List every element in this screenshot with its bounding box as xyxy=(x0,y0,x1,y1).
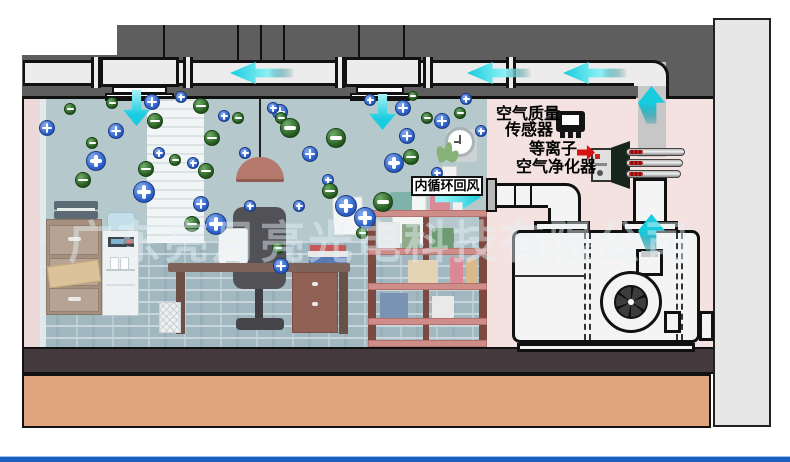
shelf-item xyxy=(378,222,400,248)
label-return-air-text: 内循环回风 xyxy=(414,179,479,194)
bookshelf-board xyxy=(368,210,487,217)
purifier-slot xyxy=(595,163,607,166)
label-plasma-line1: 等离子 xyxy=(529,141,577,157)
shelf-item xyxy=(450,257,463,283)
shelf-item xyxy=(408,260,438,283)
drawer-handle xyxy=(68,297,81,301)
purifier-duct-section xyxy=(633,178,667,224)
duct-elbow xyxy=(633,60,669,99)
slab-joint xyxy=(237,25,239,60)
plasma-tube xyxy=(626,170,681,178)
sensor-leg xyxy=(560,132,565,138)
slab-joint xyxy=(403,25,405,60)
diagram-stage: 空气质量 传感器 等离子 空气净化器 内循环回风 广东亮月亮光电科技有限公司 xyxy=(0,0,790,462)
drawer-knob xyxy=(312,302,318,306)
shelf-item xyxy=(432,296,454,318)
desk-leg xyxy=(339,272,348,334)
cooler-tray-line xyxy=(106,269,135,271)
slab-joint xyxy=(283,25,285,60)
duct-connector xyxy=(423,57,433,88)
slab-joint xyxy=(260,25,262,60)
slab-joint xyxy=(163,25,165,60)
wall-poster xyxy=(332,196,363,235)
cooler-indicator xyxy=(127,240,131,244)
plasma-tube xyxy=(626,159,683,167)
slab-joint xyxy=(358,25,360,60)
label-air-quality-line2: 传感器 xyxy=(505,122,553,138)
tube-coil xyxy=(629,150,643,154)
pipe-joint xyxy=(530,183,532,208)
ahu-divider xyxy=(584,233,586,340)
document-tray xyxy=(54,211,98,219)
shelf-item xyxy=(402,224,420,248)
bookshelf-board xyxy=(368,340,487,347)
bookshelf-post xyxy=(479,210,487,347)
shelf-item xyxy=(380,293,408,318)
sensor-leg xyxy=(568,132,573,138)
label-plasma-line2: 空气净化器 xyxy=(516,159,596,175)
ahu-access-panel xyxy=(664,311,681,333)
sensor-leg xyxy=(576,132,581,138)
ground xyxy=(22,374,711,428)
shelf-item xyxy=(390,192,412,210)
desk xyxy=(168,263,350,272)
label-return-air: 内循环回风 xyxy=(411,176,483,196)
clock-hand xyxy=(454,141,461,143)
shelf-item xyxy=(432,228,454,248)
bookshelf-board xyxy=(368,248,487,255)
drawer-handle xyxy=(68,237,81,241)
ceiling-line xyxy=(22,96,636,99)
plasma-tube xyxy=(626,148,685,156)
duct-connector xyxy=(506,57,516,88)
tube-coil xyxy=(629,161,643,165)
return-air-inlet xyxy=(486,178,497,212)
computer-monitor xyxy=(218,228,248,264)
bookshelf-board xyxy=(368,318,487,325)
waste-basket xyxy=(159,302,181,333)
bottom-rule xyxy=(0,456,790,462)
right-wall-column xyxy=(713,18,771,427)
wall-stub xyxy=(699,311,714,341)
bookshelf-board xyxy=(368,283,487,290)
drawer-knob xyxy=(312,282,318,286)
cooler-screen xyxy=(111,239,123,244)
diffuser-plenum xyxy=(344,57,421,87)
duct-connector xyxy=(183,57,193,88)
window-light-column xyxy=(147,99,204,243)
ahu-shelf-line xyxy=(514,275,584,277)
return-pipe-horizontal xyxy=(497,183,549,208)
fan-outlet-cap xyxy=(641,251,658,257)
cooler-door-line xyxy=(106,284,135,286)
shelf-item xyxy=(466,257,478,283)
bookshelf-post xyxy=(368,210,376,347)
ahu-divider xyxy=(681,233,683,340)
pendant-cord xyxy=(259,99,261,158)
chair-base xyxy=(236,318,284,330)
sensor-window xyxy=(562,115,579,125)
ahu-base xyxy=(517,343,695,352)
fan-hub xyxy=(628,299,634,305)
left-wall xyxy=(22,98,40,348)
ahu-divider xyxy=(589,233,591,340)
tube-coil xyxy=(629,172,643,176)
diffuser-plenum xyxy=(100,57,179,87)
chair-pole xyxy=(255,289,263,320)
ceiling-line xyxy=(666,96,713,99)
pipe-joint xyxy=(514,183,516,208)
purifier-knob xyxy=(597,170,603,176)
